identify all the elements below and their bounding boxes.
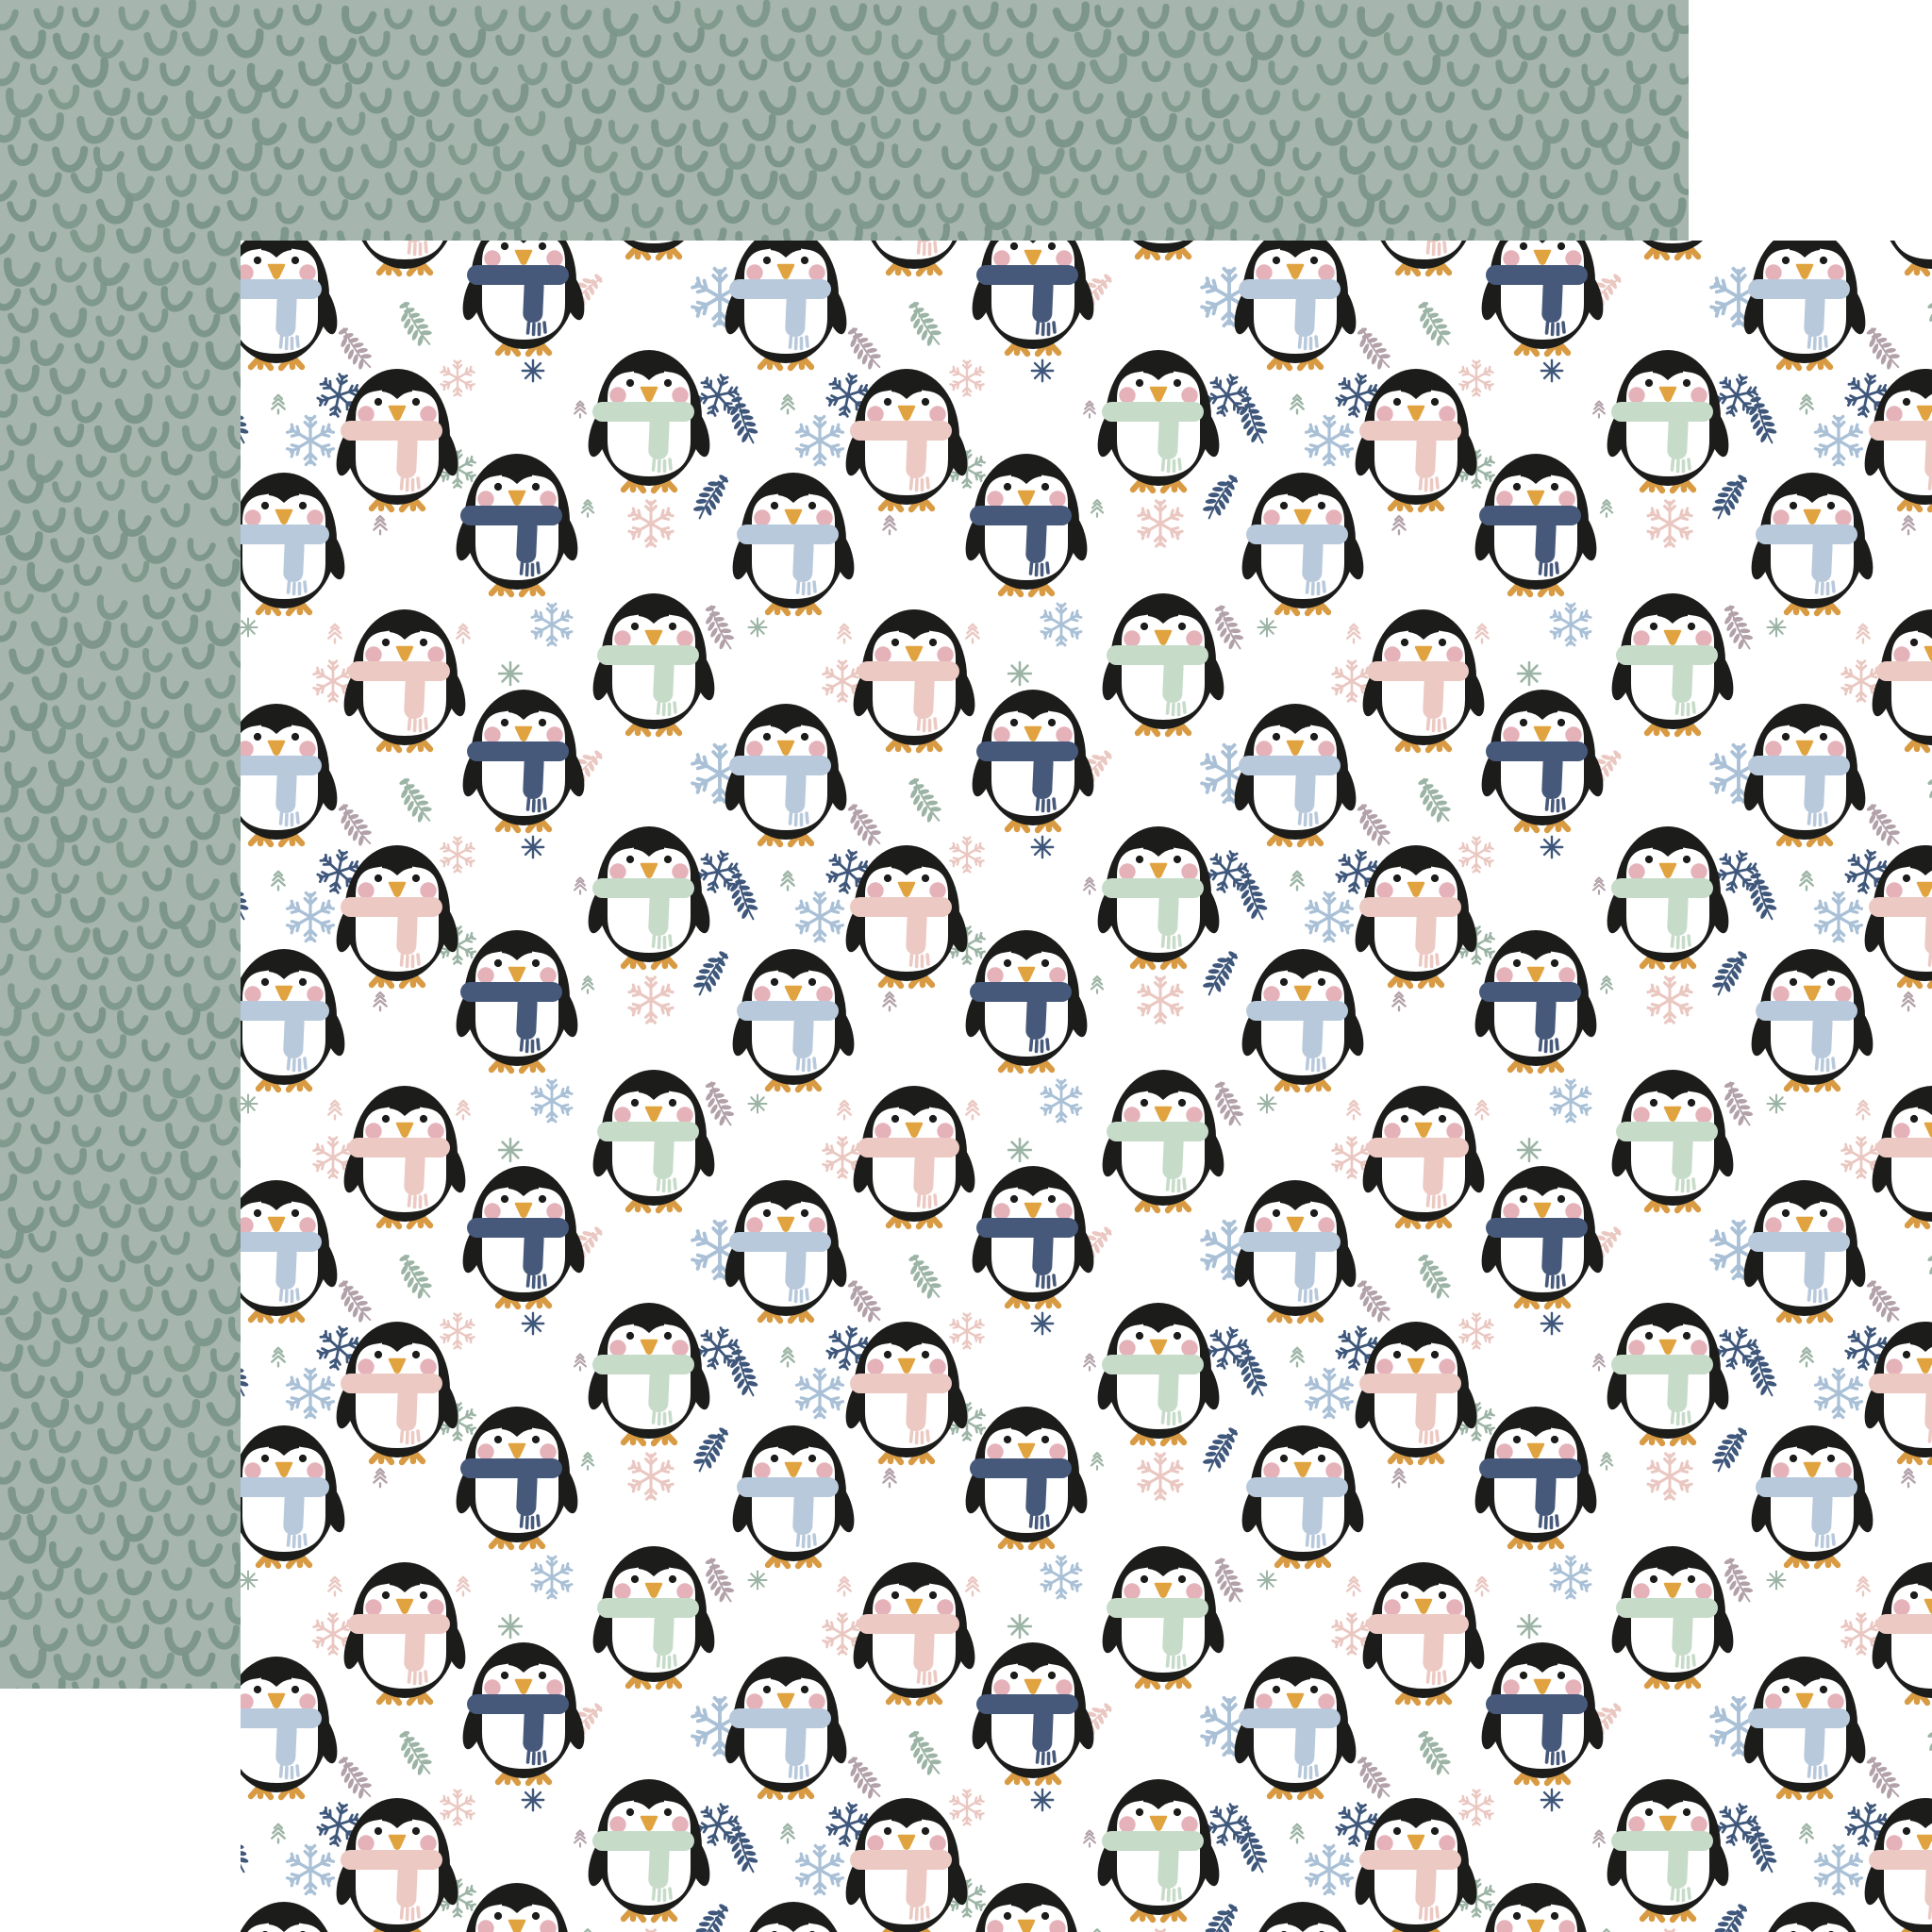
sprig-motif-navy xyxy=(1198,1898,1242,1932)
tree-motif-pink xyxy=(328,1101,341,1120)
penguin-motif-navy-scarf xyxy=(1477,1642,1607,1783)
penguin-motif-mint-scarf xyxy=(1607,593,1738,734)
flake-motif-blue xyxy=(531,1557,572,1598)
flake-motif-blue xyxy=(1815,1845,1862,1893)
penguin-motif-mint-scarf xyxy=(1098,1070,1228,1210)
tree-motif-mauve xyxy=(575,877,586,893)
penguin-motif-mint-scarf xyxy=(1603,1779,1733,1920)
penguin-motif-blue-scarf xyxy=(241,473,349,613)
penguin-motif-blue-scarf xyxy=(721,241,851,368)
aster-motif-navy xyxy=(1032,1313,1053,1334)
flake-motif-pink xyxy=(950,1790,984,1825)
aster-motif-sage xyxy=(748,1571,766,1589)
tree-motif-pink xyxy=(1347,1577,1360,1596)
tree-motif-mauve xyxy=(1902,992,1914,1010)
flake-motif-pink xyxy=(628,501,673,546)
sprig-motif-navy xyxy=(722,393,764,448)
tree-motif-mauve xyxy=(1392,516,1405,534)
tree-motif-pink xyxy=(328,625,341,643)
aster-motif-sage xyxy=(499,1139,522,1161)
sprig-motif-navy xyxy=(1707,1422,1752,1476)
aster-motif-sage xyxy=(1518,1615,1541,1638)
aster-motif-navy xyxy=(1541,360,1562,381)
penguins-group xyxy=(241,241,1932,1932)
tree-motif-sage xyxy=(1291,1348,1304,1367)
tree-motif-pink xyxy=(838,1577,851,1596)
sprig-motif-sage xyxy=(1409,297,1457,351)
tree-motif-mauve xyxy=(1392,1469,1405,1487)
sprig-motif-sage xyxy=(1919,1250,1932,1304)
tree-motif-sage xyxy=(1800,395,1813,414)
aster-motif-navy xyxy=(523,837,543,858)
aster-motif-sage xyxy=(241,618,258,636)
aster-motif-sage xyxy=(748,1094,766,1112)
tree-motif-sage xyxy=(1291,395,1304,414)
sprig-motif-navy xyxy=(1740,1823,1783,1877)
penguin-motif-mint-scarf xyxy=(589,1070,719,1210)
sprig-motif-sage xyxy=(900,1726,948,1780)
penguin-motif-blue-scarf xyxy=(728,473,858,613)
tree-motif-mauve xyxy=(575,1830,586,1846)
tree-motif-mauve xyxy=(374,516,386,534)
penguin-motif-blue-scarf xyxy=(1740,1180,1870,1321)
penguin-motif-navy-scarf xyxy=(458,1642,589,1783)
tree-motif-sage xyxy=(272,872,285,891)
sprig-motif-navy xyxy=(689,945,733,1000)
penguin-motif-blue-scarf xyxy=(1747,1902,1877,1932)
tree-motif-mauve xyxy=(1593,877,1605,893)
tree-motif-pink xyxy=(1857,625,1870,643)
penguin-motif-blue-scarf xyxy=(728,1902,858,1932)
sprig-motif-navy xyxy=(1231,393,1274,448)
flake-motif-pink xyxy=(950,838,984,873)
sprig-motif-mauve xyxy=(1349,1276,1397,1328)
aster-motif-navy xyxy=(1541,1313,1562,1334)
tree-motif-mauve xyxy=(1084,401,1095,417)
sprig-motif-sage xyxy=(1409,1250,1457,1304)
penguin-motif-pink-scarf xyxy=(1358,241,1489,274)
scrapbook-paper-mockup xyxy=(0,0,1932,1932)
penguin-motif-mint-scarf xyxy=(1603,1303,1733,1443)
sprig-motif-mauve xyxy=(1349,1753,1397,1805)
sprig-motif-mauve xyxy=(330,800,378,852)
tree-motif-sage xyxy=(272,1348,285,1367)
penguin-motif-mint-scarf xyxy=(584,826,714,967)
tree-motif-mauve xyxy=(1392,992,1405,1010)
aster-motif-sage xyxy=(499,1615,522,1638)
sprig-motif-navy xyxy=(689,1422,733,1476)
tree-motif-pink xyxy=(1347,625,1360,643)
flake-motif-blue xyxy=(1306,892,1353,941)
tree-motif-sage xyxy=(272,395,285,414)
penguin-motif-pink-scarf xyxy=(1868,1086,1932,1226)
tree-motif-sage xyxy=(1800,1348,1813,1367)
sprig-motif-navy xyxy=(1198,469,1242,524)
penguin-motif-navy-scarf xyxy=(1477,690,1607,830)
penguin-motif-mint-scarf xyxy=(589,1546,719,1687)
tree-motif-pink xyxy=(457,1577,470,1596)
tree-motif-sage xyxy=(1800,872,1813,891)
tree-motif-mauve xyxy=(1593,401,1605,417)
penguin-motif-pink-scarf xyxy=(849,609,979,750)
penguin-motif-navy-scarf xyxy=(458,241,589,354)
tree-motif-sage xyxy=(582,976,593,993)
penguin-motif-mint-scarf xyxy=(1098,241,1228,258)
flake-motif-blue xyxy=(531,604,572,645)
aster-motif-navy xyxy=(1032,1790,1053,1810)
tree-motif-pink xyxy=(457,1101,470,1120)
penguin-motif-mint-scarf xyxy=(1607,1546,1738,1687)
penguin-motif-mint-scarf xyxy=(1098,1546,1228,1687)
flake-motif-blue xyxy=(287,1369,334,1417)
flake-motif-blue xyxy=(1815,416,1862,464)
flake-motif-pink xyxy=(1647,501,1691,546)
flake-motif-pink xyxy=(1459,1314,1493,1349)
penguin-motif-blue-scarf xyxy=(241,241,341,368)
sprig-motif-sage xyxy=(1409,1726,1457,1780)
sprig-motif-sage xyxy=(391,297,439,351)
tree-motif-sage xyxy=(1291,872,1304,891)
tree-motif-sage xyxy=(781,395,794,414)
sprig-motif-sage xyxy=(391,774,439,827)
sprig-motif-navy xyxy=(1707,945,1752,1000)
sprig-motif-navy xyxy=(1740,870,1783,924)
penguin-motif-blue-scarf xyxy=(721,1657,851,1797)
penguin-motif-blue-scarf xyxy=(241,1425,349,1566)
sprig-motif-navy xyxy=(1707,1898,1752,1932)
tree-motif-mauve xyxy=(575,1354,586,1370)
flake-motif-blue xyxy=(287,416,334,464)
sprig-motif-navy xyxy=(1198,945,1242,1000)
penguin-motif-navy-scarf xyxy=(961,930,1091,1071)
tree-motif-mauve xyxy=(575,401,586,417)
sprig-motif-navy xyxy=(1740,393,1783,448)
aster-motif-sage xyxy=(1767,1571,1785,1589)
penguin-motif-blue-scarf xyxy=(241,1657,341,1797)
tree-motif-sage xyxy=(781,1348,794,1367)
penguin-motif-pink-scarf xyxy=(849,241,979,274)
sprig-motif-navy xyxy=(1707,469,1752,524)
sprig-motif-navy xyxy=(241,1346,254,1401)
tree-motif-pink xyxy=(457,625,470,643)
flake-motif-pink xyxy=(1459,1790,1493,1825)
penguin-motif-blue-scarf xyxy=(1230,1180,1360,1321)
tree-motif-sage xyxy=(781,872,794,891)
sprig-motif-navy xyxy=(722,870,764,924)
penguin-motif-mint-scarf xyxy=(1093,826,1224,967)
tree-motif-mauve xyxy=(1084,1830,1095,1846)
aster-motif-sage xyxy=(1257,1094,1275,1112)
penguin-motif-mint-scarf xyxy=(1603,350,1733,491)
tree-motif-sage xyxy=(781,1824,794,1843)
penguin-motif-mint-scarf xyxy=(584,1779,714,1920)
sprig-motif-navy xyxy=(689,469,733,524)
tree-motif-sage xyxy=(1291,1824,1304,1843)
sprig-motif-navy xyxy=(1740,1346,1783,1401)
penguin-motif-pink-scarf xyxy=(1358,1086,1489,1226)
aster-motif-navy xyxy=(523,1313,543,1334)
flake-motif-pink xyxy=(441,1790,475,1825)
penguin-motif-blue-scarf xyxy=(1747,1425,1877,1566)
sprig-motif-sage xyxy=(900,297,948,351)
sprig-motif-navy xyxy=(722,1823,764,1877)
tree-motif-mauve xyxy=(1084,1354,1095,1370)
sprig-motif-mauve xyxy=(330,1276,378,1328)
penguin-motif-mint-scarf xyxy=(1093,1303,1224,1443)
tree-motif-mauve xyxy=(374,992,386,1010)
tree-motif-sage xyxy=(582,500,593,517)
flake-motif-pink xyxy=(441,1314,475,1349)
tree-motif-mauve xyxy=(374,1469,386,1487)
sprig-motif-sage xyxy=(1919,1726,1932,1780)
tree-motif-mauve xyxy=(1593,1830,1605,1846)
aster-motif-sage xyxy=(499,662,522,685)
penguin-motif-blue-scarf xyxy=(1747,473,1877,613)
aster-motif-sage xyxy=(1008,662,1031,685)
aster-motif-sage xyxy=(1767,618,1785,636)
sprig-motif-mauve xyxy=(330,324,378,375)
sprig-motif-navy xyxy=(722,1346,764,1401)
sprig-motif-sage xyxy=(1919,774,1932,827)
penguin-motif-blue-scarf xyxy=(1238,1425,1368,1566)
flake-motif-pink xyxy=(1138,977,1182,1023)
tree-motif-sage xyxy=(1601,1453,1612,1470)
sprig-motif-sage xyxy=(391,1726,439,1780)
tree-motif-mauve xyxy=(1902,516,1914,534)
flake-motif-pink xyxy=(950,361,984,396)
flake-motif-blue xyxy=(796,1845,843,1893)
sprig-motif-sage xyxy=(900,774,948,827)
flake-motif-blue xyxy=(796,892,843,941)
sprig-motif-navy xyxy=(241,870,254,924)
sprig-motif-mauve xyxy=(1349,324,1397,375)
aster-motif-navy xyxy=(523,360,543,381)
penguin-motif-navy-scarf xyxy=(1471,1407,1601,1547)
flake-motif-blue xyxy=(1550,1557,1591,1598)
tree-motif-mauve xyxy=(883,992,895,1010)
penguin-motif-navy-scarf xyxy=(1471,454,1601,594)
flake-motif-pink xyxy=(628,977,673,1023)
tree-motif-pink xyxy=(966,625,979,643)
sprig-motif-navy xyxy=(1231,1346,1274,1401)
sprig-motif-mauve xyxy=(330,1753,378,1805)
aster-motif-sage xyxy=(1257,618,1275,636)
penguin-motif-blue-scarf xyxy=(1747,949,1877,1090)
aster-motif-sage xyxy=(1518,1139,1541,1161)
tree-motif-sage xyxy=(1800,1824,1813,1843)
penguin-motif-navy-scarf xyxy=(458,690,589,830)
penguin-motif-navy-scarf xyxy=(961,1407,1091,1547)
tree-motif-sage xyxy=(582,1453,593,1470)
penguin-motif-pink-scarf xyxy=(849,1086,979,1226)
flake-motif-blue xyxy=(1550,604,1591,645)
flake-motif-blue xyxy=(1815,892,1862,941)
sprig-motif-navy xyxy=(241,393,254,448)
tree-motif-sage xyxy=(1091,976,1103,993)
sprig-motif-navy xyxy=(1231,870,1274,924)
penguin-motif-pink-scarf xyxy=(1868,241,1932,274)
tree-motif-pink xyxy=(1475,1101,1489,1120)
penguin-motif-blue-scarf xyxy=(721,1180,851,1321)
penguin-motif-pink-scarf xyxy=(1860,845,1932,986)
aster-motif-navy xyxy=(1541,1790,1562,1810)
penguin-motif-blue-scarf xyxy=(1238,949,1368,1090)
penguin-motif-blue-scarf xyxy=(1230,241,1360,368)
tree-motif-mauve xyxy=(1593,1354,1605,1370)
penguin-motif-pink-scarf xyxy=(1868,1562,1932,1703)
aster-motif-sage xyxy=(1008,1615,1031,1638)
penguin-motif-pink-scarf xyxy=(1860,369,1932,509)
tree-motif-mauve xyxy=(1084,877,1095,893)
penguin-motif-mint-scarf xyxy=(1098,593,1228,734)
sprig-motif-mauve xyxy=(840,800,888,852)
sprig-motif-navy xyxy=(1198,1422,1242,1476)
tree-motif-pink xyxy=(1857,1577,1870,1596)
penguin-motif-blue-scarf xyxy=(241,949,349,1090)
flake-motif-blue xyxy=(1306,1369,1353,1417)
penguin-pattern xyxy=(241,241,1932,1932)
front-side-sheet xyxy=(241,241,1932,1932)
flake-motif-blue xyxy=(1041,604,1081,645)
sprig-motif-mauve xyxy=(840,324,888,375)
aster-motif-sage xyxy=(748,618,766,636)
flake-motif-blue xyxy=(1041,1557,1081,1598)
tree-motif-sage xyxy=(1091,500,1103,517)
tree-motif-pink xyxy=(1475,625,1489,643)
penguin-motif-navy-scarf xyxy=(1477,1166,1607,1307)
flake-motif-pink xyxy=(1138,1454,1182,1499)
penguin-motif-pink-scarf xyxy=(1860,1322,1932,1462)
penguin-motif-blue-scarf xyxy=(1230,1657,1360,1797)
penguin-motif-blue-scarf xyxy=(1740,241,1870,368)
penguin-motif-pink-scarf xyxy=(340,241,470,274)
aster-motif-sage xyxy=(1257,1571,1275,1589)
sprig-motif-navy xyxy=(241,1823,254,1877)
flake-motif-blue xyxy=(796,416,843,464)
penguin-motif-mint-scarf xyxy=(584,1303,714,1443)
aster-motif-navy xyxy=(1032,837,1053,858)
flake-motif-pink xyxy=(1459,361,1493,396)
penguin-motif-blue-scarf xyxy=(1238,1902,1368,1932)
penguin-motif-navy-scarf xyxy=(458,1166,589,1307)
penguin-motif-blue-scarf xyxy=(241,1180,341,1321)
sprig-motif-sage xyxy=(1919,297,1932,351)
aster-motif-navy xyxy=(1032,360,1053,381)
sprig-motif-sage xyxy=(1409,774,1457,827)
penguin-motif-blue-scarf xyxy=(1740,704,1870,844)
aster-motif-sage xyxy=(241,1094,258,1112)
penguin-motif-navy-scarf xyxy=(961,454,1091,594)
penguin-motif-pink-scarf xyxy=(1868,609,1932,750)
flake-motif-blue xyxy=(287,1845,334,1893)
tree-motif-pink xyxy=(838,625,851,643)
penguin-motif-blue-scarf xyxy=(1238,473,1368,613)
aster-motif-navy xyxy=(1541,837,1562,858)
penguin-motif-navy-scarf xyxy=(968,241,1098,354)
flake-motif-pink xyxy=(1459,838,1493,873)
penguin-motif-navy-scarf xyxy=(968,1642,1098,1783)
tree-motif-sage xyxy=(272,1824,285,1843)
sprig-motif-mauve xyxy=(1349,800,1397,852)
penguin-motif-navy-scarf xyxy=(1477,241,1607,354)
penguin-motif-blue-scarf xyxy=(1230,704,1360,844)
sprig-motif-sage xyxy=(900,1250,948,1304)
penguin-motif-pink-scarf xyxy=(1860,1798,1932,1932)
sprig-motif-navy xyxy=(689,1898,733,1932)
sprig-motif-mauve xyxy=(1858,1276,1907,1328)
penguin-motif-mint-scarf xyxy=(1093,350,1224,491)
penguin-motif-navy-scarf xyxy=(452,454,582,594)
flake-motif-pink xyxy=(1647,977,1691,1023)
penguin-motif-blue-scarf xyxy=(728,949,858,1090)
aster-motif-sage xyxy=(1518,662,1541,685)
flake-motif-blue xyxy=(1550,1080,1591,1122)
tree-motif-mauve xyxy=(1902,1469,1914,1487)
flake-motif-blue xyxy=(796,1369,843,1417)
tree-motif-mauve xyxy=(883,1469,895,1487)
flake-motif-blue xyxy=(1306,1845,1353,1893)
aster-motif-sage xyxy=(1767,1094,1785,1112)
sprig-motif-mauve xyxy=(1858,1753,1907,1805)
penguin-motif-pink-scarf xyxy=(1358,609,1489,750)
aster-motif-sage xyxy=(241,1571,258,1589)
aster-motif-navy xyxy=(523,1790,543,1810)
tree-motif-pink xyxy=(966,1101,979,1120)
tree-motif-sage xyxy=(1091,1453,1103,1470)
tree-motif-sage xyxy=(1601,500,1612,517)
penguin-motif-pink-scarf xyxy=(1358,1562,1489,1703)
sprig-motif-mauve xyxy=(840,1276,888,1328)
penguin-motif-mint-scarf xyxy=(1607,241,1738,258)
flake-motif-blue xyxy=(1041,1080,1081,1122)
penguin-motif-pink-scarf xyxy=(340,609,470,750)
flake-motif-pink xyxy=(1647,1454,1691,1499)
sprig-motif-navy xyxy=(1231,1823,1274,1877)
sprig-motif-mauve xyxy=(1858,800,1907,852)
penguin-motif-navy-scarf xyxy=(968,690,1098,830)
flake-motif-pink xyxy=(441,361,475,396)
sprig-motif-mauve xyxy=(840,1753,888,1805)
tree-motif-mauve xyxy=(883,516,895,534)
flake-motif-pink xyxy=(628,1454,673,1499)
penguin-motif-blue-scarf xyxy=(1740,1657,1870,1797)
penguin-motif-mint-scarf xyxy=(1607,1070,1738,1210)
penguin-motif-mint-scarf xyxy=(584,350,714,491)
penguin-motif-blue-scarf xyxy=(728,1425,858,1566)
penguin-motif-mint-scarf xyxy=(1603,826,1733,967)
penguin-motif-pink-scarf xyxy=(849,1562,979,1703)
penguin-motif-navy-scarf xyxy=(452,930,582,1071)
flake-motif-pink xyxy=(950,1314,984,1349)
tree-motif-pink xyxy=(838,1101,851,1120)
flake-motif-blue xyxy=(287,892,334,941)
penguin-motif-mint-scarf xyxy=(589,241,719,258)
flake-motif-pink xyxy=(1138,501,1182,546)
penguin-motif-navy-scarf xyxy=(968,1166,1098,1307)
aster-motif-sage xyxy=(1008,1139,1031,1161)
tree-motif-pink xyxy=(1347,1101,1360,1120)
penguin-motif-navy-scarf xyxy=(1471,930,1601,1071)
tree-motif-sage xyxy=(1601,976,1612,993)
penguin-motif-blue-scarf xyxy=(241,704,341,844)
flake-motif-blue xyxy=(531,1080,572,1122)
penguin-motif-blue-scarf xyxy=(721,704,851,844)
tree-motif-pink xyxy=(1475,1577,1489,1596)
penguin-motif-mint-scarf xyxy=(589,593,719,734)
penguin-motif-pink-scarf xyxy=(340,1086,470,1226)
tree-motif-pink xyxy=(1857,1101,1870,1120)
penguin-motif-mint-scarf xyxy=(1093,1779,1224,1920)
